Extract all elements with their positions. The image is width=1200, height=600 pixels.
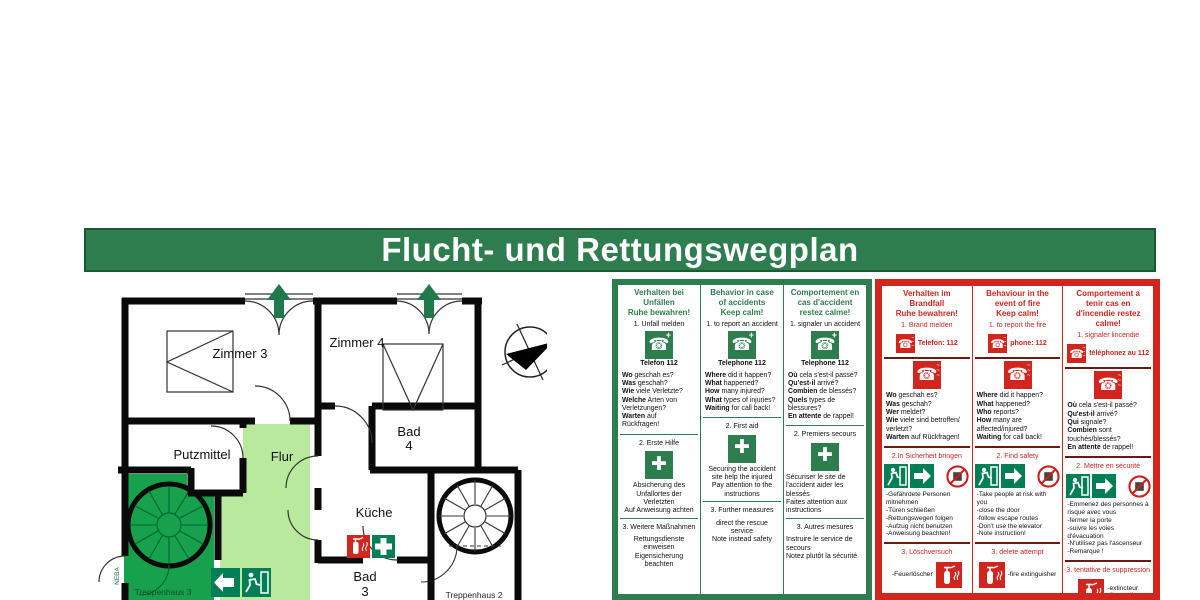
room-label: Küche — [356, 505, 393, 520]
divider — [1065, 367, 1151, 369]
exit-man-icon — [975, 464, 999, 488]
emergency-phone-icon: ☎+ — [645, 331, 673, 359]
extinguisher-label: -extincteur d'incendie — [1107, 585, 1138, 593]
first-aid-icon: ✚ — [728, 435, 756, 463]
step2-label: 2.In Sicherheit bringen — [892, 453, 962, 461]
room-label: 3 — [361, 584, 368, 599]
exit-man-icon — [884, 464, 908, 488]
step3-text: Instruire le service de secours Notez pl… — [786, 536, 864, 561]
no-elevator-icon — [1128, 475, 1151, 498]
furniture — [167, 331, 443, 410]
room-label: 4 — [405, 438, 412, 453]
step3-text: Rettungsdienste einweisen Eigensicherung… — [634, 536, 685, 570]
column-header: Behaviour in the event of fire Keep calm… — [986, 289, 1049, 319]
phone-number: téléphonez au 112 — [1089, 350, 1149, 358]
divider — [975, 542, 1061, 544]
divider — [786, 518, 864, 519]
questions-list: Where did it happen?What happened?Who re… — [977, 392, 1061, 442]
step3-label: 3. Weitere Maßnahmen — [622, 524, 695, 532]
emergency-phone-icon: ☎+ — [811, 331, 839, 359]
step1-label: 1. signaler lincendie — [1077, 332, 1139, 340]
bullet-list: -Emmenez des personnes à risque avec vou… — [1067, 501, 1151, 556]
step2-label: 2. Erste Hilfe — [639, 440, 679, 448]
no-elevator-icon — [1037, 465, 1060, 488]
divider — [703, 417, 781, 418]
room-label: Treppenhaus 2 — [446, 590, 503, 600]
floor-plan: Z Zimmer 3 Zimmer 4 Bad 4 Putzmittel Flu… — [85, 278, 547, 600]
fire-phone-icon: ☎~~~ — [896, 334, 915, 353]
phone-number: Telephone 112 — [718, 360, 766, 368]
accident-instructions-panel: Verhalten bei Unfällen Ruhe bewahren! 1.… — [612, 279, 872, 600]
emergency-phone-icon: ☎+ — [728, 331, 756, 359]
questions-list: Where did it happen?What happened?How ma… — [705, 372, 781, 413]
fire-extinguisher-icon — [347, 535, 370, 558]
extinguisher-label: -fire extinguisher — [1008, 571, 1057, 579]
questions-list: Wo geschah es?Was geschah?Wer meldet?Wie… — [886, 392, 970, 442]
questions-list: Où cela s'est-il passé?Qu'est-il arrivé?… — [788, 372, 864, 422]
divider — [1065, 456, 1151, 458]
room-label: Putzmittel — [173, 447, 230, 462]
arrow-right-icon — [1001, 464, 1025, 488]
step2-text: Absicherung des Unfallortes der Verletzt… — [624, 482, 693, 516]
step2-text: Securing the accident site help the inju… — [708, 466, 775, 500]
divider — [786, 425, 864, 426]
fire-phone-icon: ☎~~~ — [913, 361, 941, 389]
step3-label: 3. Further measures — [710, 507, 773, 515]
step3-label: 3. delete attempt — [991, 549, 1043, 557]
room-label: Bad — [397, 424, 420, 439]
step3-text: direct the rescue service Note instead s… — [712, 520, 772, 545]
fire-phone-icon: ☎~~~ — [1004, 361, 1032, 389]
accident-column-de: Verhalten bei Unfällen Ruhe bewahren! 1.… — [618, 285, 700, 594]
divider — [1065, 560, 1151, 562]
fire-instructions-panel: Verhalten im Brandfall Ruhe bewahren! 1.… — [875, 279, 1160, 600]
step1-label: 1. signaler un accident — [790, 321, 860, 329]
phone-number: Telefon 112 — [640, 360, 678, 368]
divider — [620, 518, 698, 519]
step1-label: 1. Unfall melden — [634, 321, 685, 329]
step3-label: 3. tentative de suppression — [1066, 567, 1150, 575]
fire-extinguisher-icon — [936, 562, 962, 588]
phone-number: Telephone 112 — [801, 360, 849, 368]
column-header: Verhalten im Brandfall Ruhe bewahren! — [896, 289, 958, 319]
divider — [703, 501, 781, 502]
accident-column-fr: Comportement en cas d'accident restez ca… — [783, 285, 866, 594]
column-header: Comportement en cas d'accident restez ca… — [791, 288, 859, 318]
step1-label: 1. Brand melden — [901, 322, 952, 330]
divider — [884, 357, 970, 359]
escape-plan-poster: Flucht- und Rettungswegplan — [0, 0, 1200, 600]
fire-phone-icon: ☎~~~ — [1067, 344, 1086, 363]
questions-list: Où cela s'est-il passé?Qu'est-il arrivé?… — [1067, 402, 1151, 452]
step3-label: 3. Löschversuch — [901, 549, 952, 557]
room-label: Zimmer 4 — [330, 335, 385, 350]
phone-number: Telefon: 112 — [918, 340, 958, 348]
extinguisher-label: -Feuerlöscher — [892, 571, 933, 579]
step2-label: 2. Mettre en sécurité — [1076, 463, 1140, 471]
fire-extinguisher-icon — [1078, 579, 1104, 593]
page-title: Flucht- und Rettungswegplan — [381, 231, 858, 269]
arrow-right-icon — [1092, 474, 1116, 498]
divider — [975, 357, 1061, 359]
fire-extinguisher-icon — [979, 562, 1005, 588]
room-label: Zimmer 3 — [213, 346, 268, 361]
questions-list: Wo geschah es?Was geschah?Wie viele Verl… — [622, 372, 698, 430]
divider — [884, 446, 970, 448]
first-aid-icon: ✚ — [811, 443, 839, 471]
room-label: Bad — [353, 569, 376, 584]
step2-label: 2. First aid — [726, 423, 759, 431]
side-label: NEBA — [114, 566, 121, 584]
step2-label: 2. Premiers secours — [794, 431, 856, 439]
compass-icon: Z — [502, 320, 547, 380]
column-header: Verhalten bei Unfällen Ruhe bewahren! — [628, 288, 690, 318]
bullet-list: -Take people at risk with you -close the… — [977, 491, 1061, 538]
no-elevator-icon — [946, 465, 969, 488]
exit-man-icon — [1066, 474, 1090, 498]
column-header: Comportement a tenir cas en d'incendie r… — [1076, 289, 1141, 329]
step2-text: Sécuriser le site de l'accident aider le… — [786, 474, 864, 516]
fire-column-en: Behaviour in the event of fire Keep calm… — [972, 286, 1063, 593]
bullet-list: -Gefährdete Personen mitnehmen -Türen sc… — [886, 491, 970, 538]
arrow-right-icon — [910, 464, 934, 488]
accident-column-en: Behavior in case of accidents Keep calm!… — [700, 285, 783, 594]
fire-phone-icon: ☎~~~ — [988, 334, 1007, 353]
divider — [975, 446, 1061, 448]
room-label: Treppenhaus 3 — [135, 587, 192, 597]
fire-column-de: Verhalten im Brandfall Ruhe bewahren! 1.… — [882, 286, 972, 593]
step3-label: 3. Autres mesures — [797, 524, 853, 532]
step2-label: 2. Find safety — [996, 453, 1038, 461]
step1-label: 1. to report the fire — [989, 322, 1046, 330]
phone-number: phone: 112 — [1010, 340, 1047, 348]
title-banner: Flucht- und Rettungswegplan — [84, 228, 1156, 272]
fire-column-fr: Comportement a tenir cas en d'incendie r… — [1062, 286, 1153, 593]
first-aid-icon: ✚ — [645, 451, 673, 479]
fire-phone-icon: ☎~~~ — [1094, 371, 1122, 399]
divider — [620, 434, 698, 435]
step1-label: 1. to report an accident — [706, 321, 778, 329]
first-aid-icon — [372, 535, 395, 558]
divider — [884, 542, 970, 544]
room-label: Flur — [271, 449, 294, 464]
column-header: Behavior in case of accidents Keep calm! — [710, 288, 774, 318]
